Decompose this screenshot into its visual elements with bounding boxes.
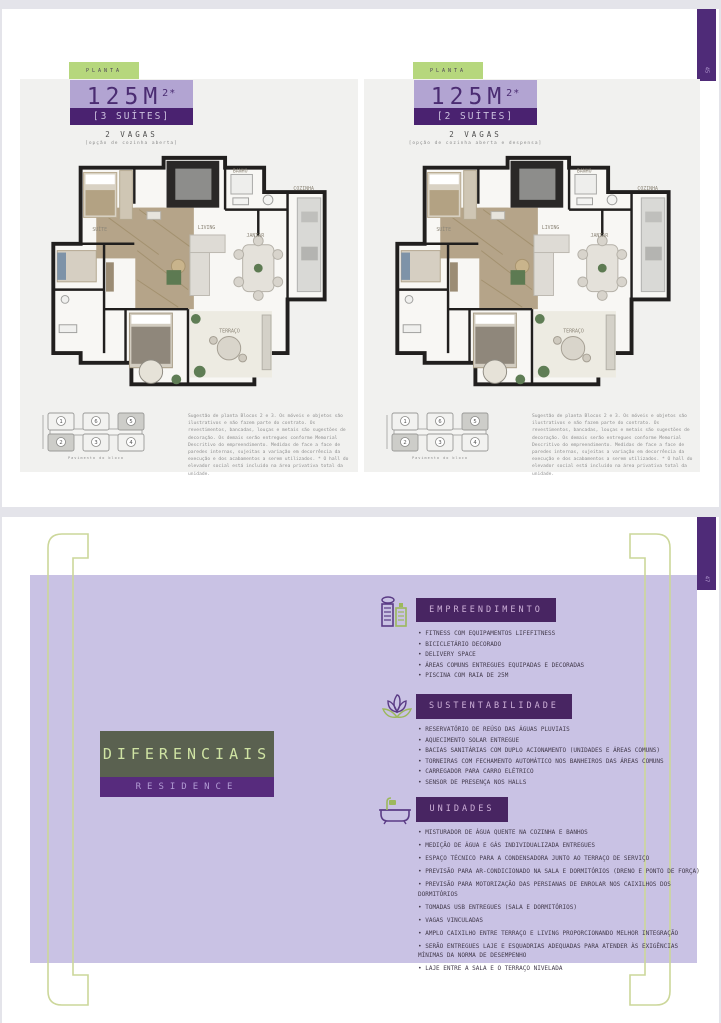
list-item: • CARREGADOR PARA CARRO ELÉTRICO — [418, 767, 664, 778]
diferenciais-title: DIFERENCIAIS — [100, 731, 274, 777]
area-value: 125M — [87, 84, 162, 110]
floorplan-panel-2-suites: PLANTA 125M2* [2 SUÍTES] 2 VAGAS [opção … — [364, 79, 700, 472]
list-item: • PREVISÃO PARA AR-CONDICIONADO NA SALA … — [418, 867, 700, 877]
unidades-list: • MISTURADOR DE ÁGUA QUENTE NA COZINHA E… — [418, 828, 700, 977]
list-item: • SENSOR DE PRESENÇA NOS HALLS — [418, 778, 664, 789]
area-sup: 2* — [506, 88, 520, 99]
brochure-spread: { "page1": { "tab_number": "45", "panels… — [0, 0, 721, 1023]
list-item: • ESPAÇO TÉCNICO PARA A CONDENSADORA JUN… — [418, 854, 700, 864]
lotus-icon — [380, 691, 414, 723]
section-heading-sustentabilidade: SUSTENTABILIDADE — [416, 694, 572, 719]
area-value: 125M — [431, 84, 506, 110]
suites-bar: [2 SUÍTES] — [414, 108, 537, 125]
list-item: • TORNEIRAS COM FECHAMENTO AUTOMÁTICO NO… — [418, 757, 664, 768]
area-sup: 2* — [162, 88, 176, 99]
floorplan-image — [40, 153, 336, 397]
list-item: • MEDIÇÃO DE ÁGUA E GÁS INDIVIDUALIZADA … — [418, 841, 700, 851]
area-headline: 125M2* — [70, 80, 193, 108]
list-item: • PISCINA COM RAIA DE 25M — [418, 671, 584, 682]
list-item: • TOMADAS USB ENTREGUES (SALA E DORMITÓR… — [418, 903, 700, 913]
disclaimer-text: Sugestão de planta Blocos 2 e 3. Os móve… — [532, 413, 696, 478]
page-bookmark-tab: 45 — [697, 9, 716, 81]
residence-subtitle: RESIDENCE — [100, 777, 274, 797]
page-bookmark-tab: 47 — [697, 517, 716, 590]
planta-tag: PLANTA — [413, 62, 483, 79]
empreendimento-list: • FITNESS COM EQUIPAMENTOS LIFEFITNESS• … — [418, 629, 584, 682]
list-item: • AQUECIMENTO SOLAR ENTREGUE — [418, 736, 664, 747]
list-item: • AMPLO CAIXILHO ENTRE TERRAÇO E LIVING … — [418, 929, 700, 939]
vagas-label: 2 VAGAS — [384, 130, 567, 139]
diferenciais-title-block: DIFERENCIAIS RESIDENCE — [100, 731, 274, 797]
keyplan: Pavimento do bloco — [384, 409, 496, 460]
planta-tag: PLANTA — [69, 62, 139, 79]
area-headline: 125M2* — [414, 80, 537, 108]
keyplan: Pavimento do bloco — [40, 409, 152, 460]
buildings-icon — [378, 596, 412, 628]
list-item: • BACIAS SANITÁRIAS COM DUPLO ACIONAMENT… — [418, 746, 664, 757]
section-heading-unidades: UNIDADES — [416, 797, 508, 822]
sustentabilidade-list: • RESERVATÓRIO DE REÚSO DAS ÁGUAS PLUVIA… — [418, 725, 664, 788]
page-floorplans: 45 PLANTA 125M2* [3 SUÍTES] 2 VAGAS [opç… — [2, 9, 719, 507]
list-item: • FITNESS COM EQUIPAMENTOS LIFEFITNESS — [418, 629, 584, 640]
page-number: 45 — [704, 61, 710, 80]
list-item: • DELIVERY SPACE — [418, 650, 584, 661]
keyplan-caption: Pavimento do bloco — [40, 456, 152, 460]
floorplan-panel-3-suites: PLANTA 125M2* [3 SUÍTES] 2 VAGAS [opção … — [20, 79, 358, 472]
disclaimer-text: Sugestão de planta Blocos 2 e 3. Os móve… — [188, 413, 352, 478]
option-label: [opção de cozinha aberta] — [0, 141, 263, 146]
section-heading-empreendimento: EMPREENDIMENTO — [416, 598, 556, 622]
list-item: • VAGAS VINCULADAS — [418, 916, 700, 926]
list-item: • ÁREAS COMUNS ENTREGUES EQUIPADAS E DEC… — [418, 661, 584, 672]
list-item: • PREVISÃO PARA MOTORIZAÇÃO DAS PERSIANA… — [418, 880, 700, 899]
keyplan-caption: Pavimento do bloco — [384, 456, 496, 460]
page-number: 47 — [704, 570, 710, 589]
list-item: • MISTURADOR DE ÁGUA QUENTE NA COZINHA E… — [418, 828, 700, 838]
page-diferenciais: 47 DIFERENCIAIS RESIDENCE EMPREENDIMENTO… — [2, 517, 719, 1023]
list-item: • LAJE ENTRE A SALA E O TERRAÇO NIVELADA — [418, 964, 700, 974]
list-item: • RESERVATÓRIO DE REÚSO DAS ÁGUAS PLUVIA… — [418, 725, 664, 736]
bathtub-icon — [378, 794, 412, 826]
vagas-label: 2 VAGAS — [40, 130, 223, 139]
floorplan-image — [384, 153, 680, 397]
suites-bar: [3 SUÍTES] — [70, 108, 193, 125]
list-item: • SERÃO ENTREGUES LAJE E ESQUADRIAS ADEQ… — [418, 942, 700, 961]
option-label: [opção de cozinha aberta e despensa] — [344, 141, 607, 146]
list-item: • BICICLETÁRIO DECORADO — [418, 640, 584, 651]
